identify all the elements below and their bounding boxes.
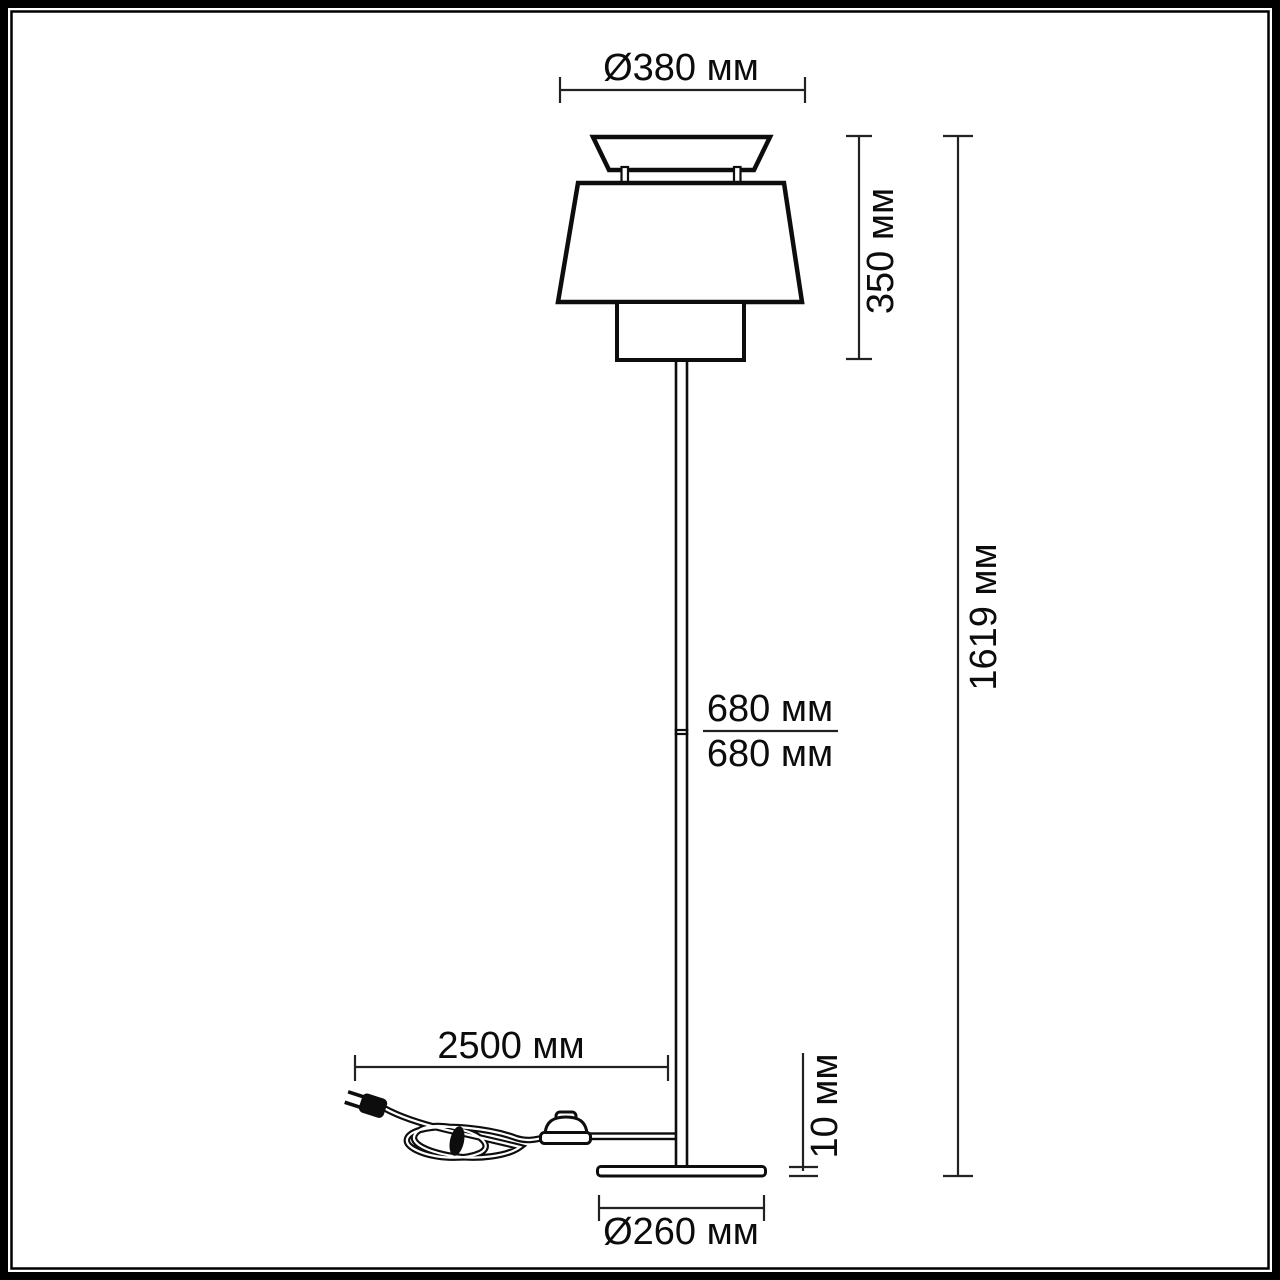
lamp-base-plate — [598, 1167, 766, 1177]
plug-prong-top — [348, 1092, 363, 1097]
base-thickness-label: 10 мм — [804, 1053, 846, 1158]
lamp-main-shade — [558, 183, 802, 302]
switch-base — [541, 1133, 591, 1144]
lamp-pole — [676, 360, 687, 1168]
total-height-label: 1619 мм — [963, 543, 1005, 690]
dim-cord-length: 2500 мм — [355, 1025, 668, 1081]
cord-coil-outline — [384, 1108, 547, 1158]
dim-pole-segments: 680 мм 680 мм — [703, 688, 838, 775]
lower-pole-label: 680 мм — [707, 733, 833, 775]
dim-total-height: 1619 мм — [943, 136, 1005, 1176]
shade-height-label: 350 мм — [860, 188, 902, 314]
dim-base-thickness: 10 мм — [789, 1053, 846, 1176]
floor-lamp — [541, 137, 803, 1176]
cord-to-pole-line — [586, 1134, 676, 1140]
lamp-inner-cylinder — [617, 302, 744, 360]
floor-lamp-dimension-drawing: Ø380 мм 350 мм 1619 мм 680 мм 680 мм 250… — [0, 0, 1280, 1280]
dim-shade-diameter: Ø380 мм — [560, 47, 805, 103]
power-cord — [343, 1088, 547, 1158]
dim-shade-height: 350 мм — [846, 136, 902, 359]
cord-length-label: 2500 мм — [437, 1025, 584, 1067]
upper-pole-label: 680 мм — [707, 688, 833, 730]
foot-switch — [541, 1112, 591, 1144]
power-plug-icon — [343, 1088, 388, 1120]
diagram-canvas: Ø380 мм 350 мм 1619 мм 680 мм 680 мм 250… — [0, 0, 1280, 1280]
plug-prong-bottom — [345, 1102, 360, 1107]
lamp-top-bowl — [593, 137, 770, 170]
dim-base-diameter: Ø260 мм — [599, 1195, 764, 1253]
base-diameter-label: Ø260 мм — [603, 1211, 759, 1253]
shade-diameter-label: Ø380 мм — [603, 47, 759, 89]
